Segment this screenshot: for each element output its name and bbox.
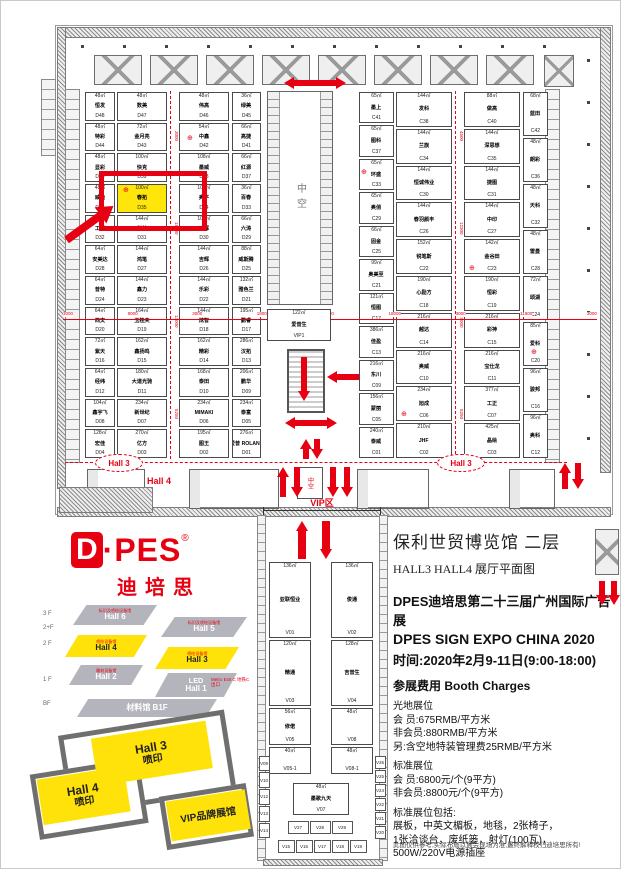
hall-layer: 喷绘设备馆 Hall 4 xyxy=(65,635,147,657)
corridor-wall-bottom xyxy=(263,859,383,866)
booth-cell: 72㎡ 紫天 D16 xyxy=(85,337,115,366)
booth-id: C41 xyxy=(372,116,381,121)
dimension-number: 5250 xyxy=(173,409,178,419)
booth-name: 奥俏 xyxy=(371,206,381,211)
booth-id: V01 xyxy=(286,631,295,636)
booth-id: D26 xyxy=(199,267,208,272)
booth-size: 64㎡ xyxy=(95,278,106,283)
booth-size: 122㎡ xyxy=(292,311,305,316)
raw-space-title: 光地展位 xyxy=(393,700,621,714)
booth-id: C26 xyxy=(419,230,428,235)
booth-id: D29 xyxy=(242,236,251,241)
booth-size: 88㎡ xyxy=(487,94,498,99)
booth-name: 恒诚伟业 xyxy=(414,180,434,185)
booth-cell: 64㎡ 西文 D20 xyxy=(85,307,115,336)
booth-id: D05 xyxy=(242,420,251,425)
booth-cell: 206㎡ 鹏华 D09 xyxy=(232,368,261,397)
vip-booth-center: 48㎡ 墨歌九天 V07 xyxy=(293,783,349,815)
booth-name: 发科 xyxy=(419,107,429,112)
column-dots-top xyxy=(81,45,581,48)
booth-cell: 216㎡ 奥威 C10 xyxy=(396,350,452,385)
booth-id: D15 xyxy=(137,359,146,364)
booth-name: 鑫力 xyxy=(137,288,147,293)
booth-id: D18 xyxy=(199,328,208,333)
booth-cell: 144㎡ 吉辉 D26 xyxy=(179,245,229,274)
booth-id: C09 xyxy=(372,384,381,389)
booth-name: 普特 xyxy=(95,288,105,293)
booth-id: D37 xyxy=(242,175,251,180)
booth-id: C10 xyxy=(419,377,428,382)
booth-cell: 234㎡ 新世纪 D07 xyxy=(117,399,167,428)
elevator-block xyxy=(486,55,534,85)
d-block-col2: 48㎡ 数美 D47 72㎡ 金月亮 D43 100㎡ 快克 D39 100㎡ … xyxy=(117,91,167,459)
booth-cell: 216㎡ 宝仕龙 C11 xyxy=(464,350,520,385)
booth-name: 恒发 xyxy=(95,104,105,109)
booth-cell: 48㎡ V08-1 xyxy=(331,747,373,774)
standard-booth-title: 标准展位 xyxy=(393,760,621,774)
booth-cell: 88㎡ 威斯腾 D25 xyxy=(232,245,261,274)
down-arrow-icon xyxy=(312,439,321,459)
booth-name: 深思想 xyxy=(484,144,499,149)
booth-cell: 66㎡ 红源 D37 xyxy=(232,153,261,182)
booth-size: 144㎡ xyxy=(417,131,430,136)
d-block-col3: 48㎡ 伟高 D46 54㎡ 中鑫 D42 108㎡ 墨威 D38 108㎡ 奥… xyxy=(179,91,229,459)
booth-cell: 162㎡ 鑫扬鸣 D15 xyxy=(117,337,167,366)
mini-map: Hall 3 喷印 Hall 4 喷印 VIP品牌展馆 xyxy=(29,697,260,869)
floor-label: 1 F xyxy=(43,677,52,683)
service-room xyxy=(189,469,279,509)
booth-size: 48㎡ xyxy=(530,140,541,145)
booth-cell: 48㎡ 恒发 D48 xyxy=(85,92,115,121)
booth-cell: 240㎡ 泰威 C01 xyxy=(359,427,394,458)
expo-title-en: DPES SIGN EXPO CHINA 2020 xyxy=(393,631,621,647)
booth-cell: 144㎡ 深思想 C35 xyxy=(464,129,520,164)
hall-tag: 雕刻设备馆 xyxy=(96,669,116,673)
booth-id: D14 xyxy=(199,359,208,364)
booth-cell: 144㎡ 捷图 C31 xyxy=(464,166,520,201)
minimap-hall3-sub: 喷印 xyxy=(142,753,163,767)
booth-id: V05 xyxy=(286,738,295,743)
vip-small-booths-row2: V15V16V17V18V19 xyxy=(277,839,367,853)
booth-id: C19 xyxy=(487,304,496,309)
price-line: 非会员:880RMB/平方米 xyxy=(393,727,621,741)
booth-id: D17 xyxy=(242,328,251,333)
hall-name: Hall 4 xyxy=(95,644,116,652)
booth-name: 鹏华 xyxy=(241,380,251,385)
booth-size: 144㎡ xyxy=(485,168,498,173)
booth-cell: V25 xyxy=(375,770,386,783)
booth-size: 104㎡ xyxy=(93,401,106,406)
booth-name: 修偌 xyxy=(285,724,295,729)
booth-size: 234㎡ xyxy=(135,401,148,406)
booth-name: 快克 xyxy=(137,165,147,170)
booth-size: 72㎡ xyxy=(95,339,106,344)
booth-name: 固金 xyxy=(371,239,381,244)
booth-cell: 96㎡ 骏邦 C16 xyxy=(523,368,548,412)
down-arrow-icon xyxy=(341,467,353,497)
vip1-booth: 122㎡ 爱普生 VIP1 xyxy=(267,309,331,341)
booth-size: 240㎡ xyxy=(370,429,383,434)
booth-size: 136㎡ xyxy=(283,564,296,569)
booth-cell: 104㎡ 鑫宇飞 D08 xyxy=(85,399,115,428)
booth-cell: V16 xyxy=(296,840,313,853)
booth-name: 伟高 xyxy=(199,104,209,109)
price-line: 非会员:8800元/个(9平方) xyxy=(393,787,621,801)
booth-size: 216㎡ xyxy=(485,352,498,357)
booth-id: D45 xyxy=(242,114,251,119)
booth-name: 佳盈 xyxy=(371,339,381,344)
floor-label: 2+F xyxy=(43,625,54,631)
booth-name: 汉拓 xyxy=(241,349,251,354)
booth-size: 270㎡ xyxy=(135,431,148,436)
hall-layer: 标识及喷绘设备馆 Hall 6 xyxy=(73,605,157,625)
booth-id: C29 xyxy=(372,217,381,222)
booth-size: 72㎡ xyxy=(137,125,148,130)
booth-id: V08 xyxy=(348,738,357,743)
down-arrow-icon xyxy=(572,463,583,489)
small-void-label: 中空 xyxy=(306,477,315,489)
booth-cell: 65㎡ 墨上 C41 xyxy=(359,92,394,123)
booth-id: C05 xyxy=(372,418,381,423)
booth-id: D11 xyxy=(138,390,147,395)
hall-name: Hall 3 xyxy=(186,656,207,664)
booth-size: 206㎡ xyxy=(240,370,253,375)
booth-id: V03 xyxy=(286,699,295,704)
booth-size: 136㎡ xyxy=(345,564,358,569)
stairs-block xyxy=(94,55,142,85)
booth-id: C36 xyxy=(531,175,540,180)
booth-cell: 36㎡ 绿美 D45 xyxy=(232,92,261,121)
booth-cell: 180㎡ 大道光驰 D11 xyxy=(117,368,167,397)
hall-name: Hall 6 xyxy=(104,613,125,621)
booth-id: D24 xyxy=(95,298,104,303)
booth-name: 六涛 xyxy=(241,226,251,231)
disclaimer-text: 此图仅供参考,实际布局以展会现场为准,最终解释权归迪培思所有! xyxy=(393,839,580,849)
booth-size: 144㎡ xyxy=(197,247,210,252)
hall-name: Hall 5 xyxy=(193,625,214,633)
booth-size: 64㎡ xyxy=(95,370,106,375)
floor-label: BF xyxy=(43,701,51,707)
booth-name: 精彩 xyxy=(199,349,209,354)
booth-size: 195㎡ xyxy=(197,431,210,436)
booth-size: 377㎡ xyxy=(485,388,498,393)
booth-id: D28 xyxy=(95,267,104,272)
floor-label: 3 F xyxy=(43,611,52,617)
logo-text: ·PES xyxy=(103,532,182,568)
down-arrow-icon xyxy=(291,467,303,497)
booth-size: 234㎡ xyxy=(240,401,253,406)
booth-name: 墨上 xyxy=(371,105,381,110)
booth-size: 120㎡ xyxy=(283,642,296,647)
booth-size: 48㎡ xyxy=(316,785,327,790)
vip-zone-label: VIP区 xyxy=(292,496,352,509)
booth-name: 爱普 ROLAND xyxy=(232,441,261,446)
hall-layer: 雕刻设备馆 Hall 2 xyxy=(69,665,143,685)
booth-id: C27 xyxy=(487,230,496,235)
booth-cell: V13 xyxy=(259,806,270,822)
logo-d-mark: D xyxy=(71,532,103,568)
booth-size: 132㎡ xyxy=(240,278,253,283)
booth-name: 泰田 xyxy=(199,380,209,385)
booth-id: V04 xyxy=(348,699,357,704)
booth-size: 142㎡ xyxy=(485,241,498,246)
booth-id: C03 xyxy=(487,451,496,456)
booth-id: D27 xyxy=(137,267,146,272)
booth-name: 奥美至 xyxy=(369,272,384,277)
booth-cell: V22 xyxy=(375,798,386,811)
booth-size: 99㎡ xyxy=(371,261,382,266)
booth-name: 宝仕龙 xyxy=(484,364,499,369)
booth-cell: 144㎡ 中印 C27 xyxy=(464,202,520,237)
vip-booths-left: 136㎡ 亚联恒业 V01 120㎡ 精通 V03 56㎡ 修偌 V05 40㎡… xyxy=(269,561,311,775)
booth-cell: V19 xyxy=(350,840,367,853)
booth-id: D03 xyxy=(137,451,146,456)
booth-size: 162㎡ xyxy=(135,339,148,344)
booth-cell: 156㎡ 蒙丽 C05 xyxy=(359,393,394,424)
booth-name: 骏邦 xyxy=(530,387,540,392)
booth-cell: 48㎡ 朗彩 C36 xyxy=(523,138,548,182)
double-arrow-icon xyxy=(284,77,346,89)
minimap-vip-label: VIP品牌展馆 xyxy=(180,805,237,825)
booth-id: C40 xyxy=(487,120,496,125)
booth-id: D07 xyxy=(137,420,146,425)
dimension-number: 3000 xyxy=(587,312,597,317)
booth-name: 吉辉 xyxy=(199,257,209,262)
charges-title: 参展费用 Booth Charges xyxy=(393,677,621,694)
booth-id: D21 xyxy=(242,298,251,303)
booth-cell: 136㎡ 俊通 V02 xyxy=(331,562,373,638)
booth-cell: 66㎡ 高捷 D41 xyxy=(232,123,261,152)
booth-cell: 56㎡ 修偌 V05 xyxy=(269,708,311,745)
includes-section: 标准展位包括: 展板，中英文楣板，地毯，2张椅子，1张洽谈台，废纸篓，射灯(10… xyxy=(393,807,621,861)
booth-cell: 162㎡ 精彩 D14 xyxy=(179,337,229,366)
booth-id: D31 xyxy=(137,236,146,241)
booth-size: 64㎡ xyxy=(95,247,106,252)
booth-id: C07 xyxy=(487,414,496,419)
booth-id: D42 xyxy=(199,144,208,149)
plan-subtitle: HALL3 HALL4 展厅平面图 xyxy=(393,560,621,577)
booth-id: D02 xyxy=(199,451,208,456)
stairs-block xyxy=(206,55,254,85)
booth-name: 吉普生 xyxy=(344,671,359,676)
booth-name: 金月亮 xyxy=(134,134,149,139)
up-arrow-icon xyxy=(277,467,289,497)
booth-cell: 48㎡ 数美 D47 xyxy=(117,92,167,121)
includes-line: 展板，中英文楣板，地毯，2张椅子， xyxy=(393,820,621,834)
booth-size: 144㎡ xyxy=(417,94,430,99)
booth-name: MIMAKI xyxy=(195,410,214,415)
booth-cell: 68㎡ 蓝田 C42 xyxy=(523,92,548,136)
booth-id: D06 xyxy=(199,420,208,425)
lower-left-structure xyxy=(59,487,153,513)
dimension-number: 18000 xyxy=(458,315,463,328)
booth-size: 48㎡ xyxy=(347,749,358,754)
booth-size: 216㎡ xyxy=(370,362,383,367)
booth-cell: 48㎡ 特彩 D44 xyxy=(85,123,115,152)
booth-cell: 144㎡ 兰旗 C34 xyxy=(396,129,452,164)
booth-id: D22 xyxy=(199,298,208,303)
booth-size: 234㎡ xyxy=(417,388,430,393)
booth-name: 显彩 xyxy=(95,165,105,170)
c-block-col3: 88㎡ 做高 C40 144㎡ 深思想 C35 144㎡ 捷图 C31 144㎡… xyxy=(464,91,520,459)
booth-name: 鸿笔 xyxy=(137,257,147,262)
booth-id: D47 xyxy=(137,114,146,119)
down-arrow-icon xyxy=(597,581,607,605)
booth-id: C01 xyxy=(372,451,381,456)
booth-id: C20 xyxy=(531,359,540,364)
logo-chinese-name: 迪培思 xyxy=(117,571,201,600)
booth-name: 数美 xyxy=(137,104,147,109)
booth-size: 144㎡ xyxy=(135,278,148,283)
booth-size: 66㎡ xyxy=(241,125,252,130)
includes-line: 500W/220V电源插座 xyxy=(393,847,621,861)
minimap-hall4-sub: 喷印 xyxy=(74,795,95,809)
booth-name: 雅色兰 xyxy=(239,288,254,293)
booth-name: 心励方 xyxy=(416,291,431,296)
booth-name: 雷曼 xyxy=(530,249,540,254)
booth-cell: 48㎡ 墨歌九天 V07 xyxy=(293,783,349,815)
price-line: 会 员:675RMB/平方米 xyxy=(393,714,621,728)
booth-size: 54㎡ xyxy=(199,125,210,130)
booth-id: C16 xyxy=(531,405,540,410)
booth-size: 144㎡ xyxy=(485,204,498,209)
booth-name: 安美达 xyxy=(92,257,107,262)
booth-name: 奥威 xyxy=(419,364,429,369)
booth-id: D46 xyxy=(199,114,208,119)
booth-id: V02 xyxy=(348,631,357,636)
booth-name: 宏佳 xyxy=(95,441,105,446)
booth-id: D08 xyxy=(95,420,104,425)
stairs-block xyxy=(544,55,574,87)
hall-name: Hall 2 xyxy=(95,673,116,681)
booth-cell: V20 xyxy=(375,826,386,839)
booth-size: 65㎡ xyxy=(371,94,382,99)
booth-id: C22 xyxy=(419,267,428,272)
up-arrow-icon xyxy=(559,463,570,489)
booth-size: 108㎡ xyxy=(197,155,210,160)
booth-cell: 377㎡ 工正 C07 xyxy=(464,386,520,421)
booth-cell: 85㎡ 爱科 C20 xyxy=(523,322,548,366)
booth-name: 紫天 xyxy=(95,349,105,354)
booth-size: 66㎡ xyxy=(241,155,252,160)
raw-space-section: 光地展位 会 员:675RMB/平方米非会员:880RMB/平方米另:含空地特装… xyxy=(393,700,621,754)
fire-hydrant-icon: ⊕ xyxy=(187,135,193,142)
escalator-down-arrow-icon xyxy=(298,357,310,401)
booth-size: 128㎡ xyxy=(93,431,106,436)
booth-size: 48㎡ xyxy=(530,232,541,237)
hall3-label-right: Hall 3 xyxy=(437,454,485,472)
booth-size: 144㎡ xyxy=(417,168,430,173)
booth-id: V05-1 xyxy=(283,767,296,772)
hall-tag: 标识及喷绘设备馆 xyxy=(188,621,220,625)
booth-size: 286㎡ xyxy=(240,339,253,344)
down-arrow-icon xyxy=(319,521,333,559)
booth-cell: 136㎡ 亚联恒业 V01 xyxy=(269,562,311,638)
booth-cell: 276㎡ 爱普 ROLAND D01 xyxy=(232,429,261,458)
booth-cell: 210㎡ JHF C02 xyxy=(396,423,452,458)
booth-cell: 96㎡ 奥科 C12 xyxy=(523,414,548,458)
booth-size: 96㎡ xyxy=(530,370,541,375)
hall-layer: 喷绘设备馆 Hall 3 xyxy=(155,647,239,669)
booth-name: 颂湖 xyxy=(530,295,540,300)
booth-id: C35 xyxy=(487,157,496,162)
booth-id: D30 xyxy=(199,236,208,241)
booth-id: D44 xyxy=(95,144,104,149)
booth-cell: 168㎡ 泰田 D10 xyxy=(179,368,229,397)
booth-cell: 144㎡ 发科 C38 xyxy=(396,92,452,127)
expo-time: 时间:2020年2月9-11日(9:00-18:00) xyxy=(393,650,621,669)
dimension-number: 3000 xyxy=(173,131,178,141)
booth-id: D25 xyxy=(242,267,251,272)
booth-size: 128㎡ xyxy=(345,642,358,647)
booth-size: 156㎡ xyxy=(370,395,383,400)
column-dots-right xyxy=(587,59,590,469)
booth-size: 72㎡ xyxy=(530,278,541,283)
booth-size: 216㎡ xyxy=(417,352,430,357)
atrium-core: 中空 xyxy=(280,92,320,304)
booth-name: 鑫扬鸣 xyxy=(134,349,149,354)
booth-cell: 64㎡ 普特 D24 xyxy=(85,276,115,305)
booth-name: 威斯腾 xyxy=(239,257,254,262)
hall4-label: Hall 4 xyxy=(147,476,171,486)
booth-name: JHF xyxy=(419,438,429,443)
booth-id: D10 xyxy=(199,390,208,395)
booth-size: 65㎡ xyxy=(371,161,382,166)
booth-name: 爱科 xyxy=(530,341,540,346)
booth-cell: 48㎡ V08 xyxy=(331,708,373,745)
booth-id: C34 xyxy=(419,157,428,162)
floorplan-page: 48㎡ 恒发 D48 48㎡ 特彩 D44 48㎡ 显彩 D40 48㎡ 威迪 … xyxy=(0,0,621,869)
expo-title-cn: DPES迪培思第二十三届广州国际广告展 xyxy=(393,591,621,629)
hall-name: Hall 1 xyxy=(185,685,206,693)
booth-id: C31 xyxy=(487,193,496,198)
booth-cell: 425㎡ 晶绘 C03 xyxy=(464,423,520,458)
booth-size: 180㎡ xyxy=(135,370,148,375)
vip-booths-right: 136㎡ 俊通 V02 128㎡ 吉普生 V04 48㎡ V08 48㎡ V08… xyxy=(331,561,373,775)
booth-name: 泰富 xyxy=(241,410,251,415)
booth-size: 100㎡ xyxy=(135,155,148,160)
hall-layer: 标识及喷绘设备馆 Hall 5 xyxy=(161,617,247,637)
standard-booth-lines: 会 员:6800元/个(9平方)非会员:8800元/个(9平方) xyxy=(393,774,621,801)
booth-id: C11 xyxy=(488,377,497,382)
booth-cell: 164㎡ 玉桂夫 D19 xyxy=(117,307,167,336)
service-room xyxy=(509,469,555,509)
booth-size: 36㎡ xyxy=(241,186,252,191)
booth-name: 越达 xyxy=(419,328,429,333)
left-arrow-icon xyxy=(327,371,359,383)
booth-size: 234㎡ xyxy=(197,401,210,406)
booth-id: D16 xyxy=(95,359,104,364)
booth-id: D20 xyxy=(95,328,104,333)
booth-cell: V28 xyxy=(310,821,331,834)
booth-cell: 234㎡ 泰富 D05 xyxy=(232,399,261,428)
booth-size: 66㎡ xyxy=(241,217,252,222)
booth-cell: V29 xyxy=(332,821,353,834)
booth-cell: 120㎡ 精通 V03 xyxy=(269,640,311,706)
venue-title: 保利世贸博览馆 二层 xyxy=(393,528,621,553)
booth-size: 144㎡ xyxy=(485,131,498,136)
booth-cell: 48㎡ 伟高 D46 xyxy=(179,92,229,121)
booth-size: 85㎡ xyxy=(530,324,541,329)
booth-id: D13 xyxy=(242,359,251,364)
booth-size: 152㎡ xyxy=(417,241,430,246)
booth-name: 亿方 xyxy=(137,441,147,446)
booth-id: D32 xyxy=(95,236,104,241)
booth-name: 恒彩 xyxy=(487,291,497,296)
booth-size: 276㎡ xyxy=(240,431,253,436)
booth-size: 66㎡ xyxy=(371,228,382,233)
booth-id: C14 xyxy=(419,341,428,346)
